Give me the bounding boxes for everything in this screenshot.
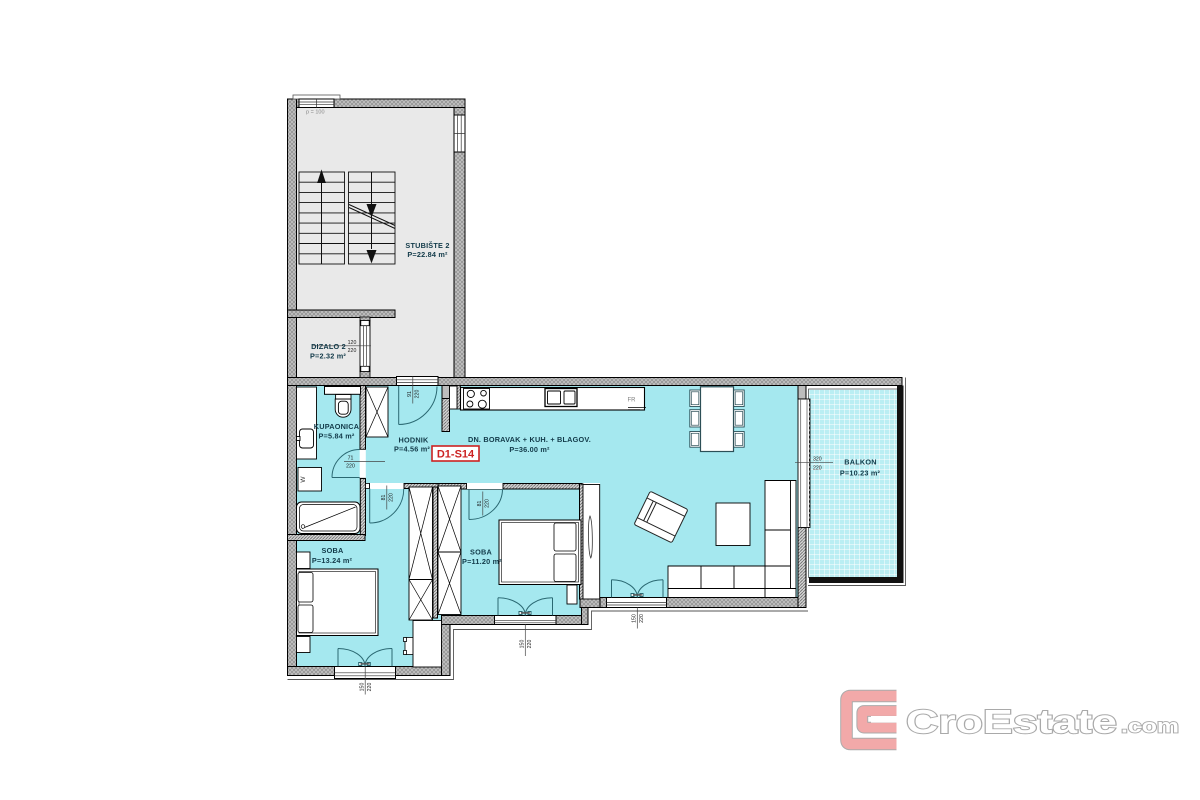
svg-text:150: 150 bbox=[359, 683, 365, 692]
svg-text:DN. BORAVAK + KUH. + BLAGOV.: DN. BORAVAK + KUH. + BLAGOV. bbox=[468, 435, 591, 444]
svg-text:P=5.84 m²: P=5.84 m² bbox=[318, 432, 354, 441]
svg-text:81: 81 bbox=[381, 495, 387, 501]
svg-text:SOBA: SOBA bbox=[322, 546, 344, 555]
svg-text:220: 220 bbox=[415, 390, 421, 399]
svg-text:P=10.23 m²: P=10.23 m² bbox=[840, 469, 881, 478]
svg-text:D1-S14: D1-S14 bbox=[437, 449, 475, 461]
svg-text:91: 91 bbox=[407, 391, 413, 397]
svg-text:220: 220 bbox=[813, 465, 822, 471]
svg-text:p = 100: p = 100 bbox=[306, 110, 325, 116]
svg-text:KUPAONICA: KUPAONICA bbox=[314, 422, 360, 431]
svg-text:220: 220 bbox=[348, 348, 357, 354]
svg-text:BALKON: BALKON bbox=[844, 458, 876, 467]
svg-text:120: 120 bbox=[348, 340, 357, 346]
svg-text:150: 150 bbox=[520, 640, 526, 649]
svg-text:320: 320 bbox=[813, 456, 822, 462]
svg-text:SOBA: SOBA bbox=[470, 548, 492, 557]
svg-text:220: 220 bbox=[389, 493, 395, 502]
svg-text:81: 81 bbox=[477, 501, 483, 507]
svg-text:DIZALO 2: DIZALO 2 bbox=[311, 342, 346, 351]
svg-text:.com: .com bbox=[1121, 716, 1179, 738]
svg-text:220: 220 bbox=[346, 464, 355, 470]
svg-text:HODNIK: HODNIK bbox=[399, 436, 430, 445]
svg-text:CroEstate: CroEstate bbox=[906, 704, 1117, 741]
svg-text:71: 71 bbox=[348, 456, 354, 462]
svg-text:220: 220 bbox=[367, 683, 373, 692]
svg-text:W: W bbox=[300, 476, 307, 483]
svg-text:P=36.00 m²: P=36.00 m² bbox=[509, 445, 550, 454]
svg-text:P=2.32 m²: P=2.32 m² bbox=[310, 352, 346, 361]
svg-text:150: 150 bbox=[632, 614, 638, 623]
svg-text:P=4.56 m²: P=4.56 m² bbox=[394, 445, 430, 454]
svg-text:P=22.84 m²: P=22.84 m² bbox=[407, 250, 448, 259]
svg-text:P=13.24 m²: P=13.24 m² bbox=[312, 556, 353, 565]
svg-text:STUBIŠTE 2: STUBIŠTE 2 bbox=[405, 241, 449, 250]
svg-text:220: 220 bbox=[639, 614, 645, 623]
svg-text:FR: FR bbox=[628, 398, 637, 404]
svg-text:220: 220 bbox=[527, 640, 533, 649]
svg-text:P=11.20 m²: P=11.20 m² bbox=[462, 557, 502, 566]
svg-text:220: 220 bbox=[485, 499, 491, 508]
